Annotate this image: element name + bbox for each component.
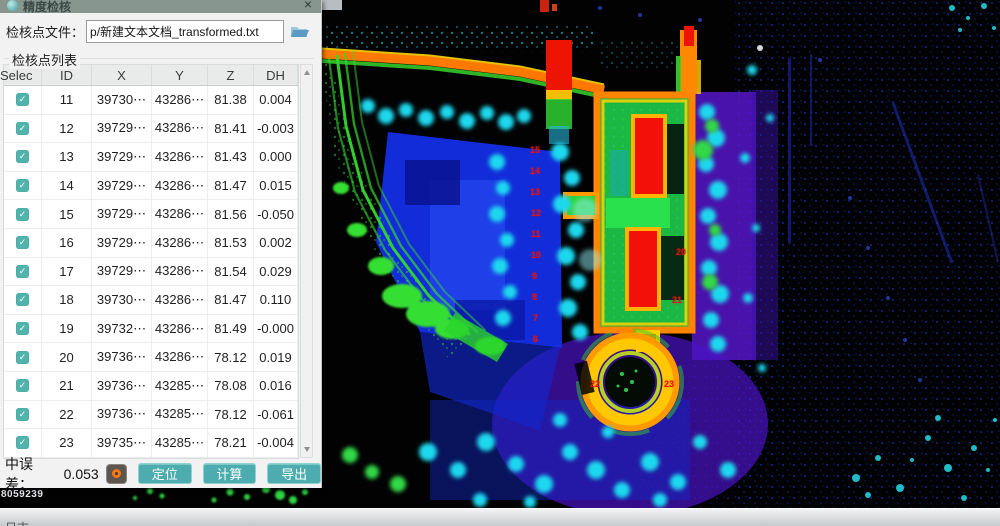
row-checkbox[interactable]: ✓ <box>16 293 29 306</box>
cell-dh: 0.016 <box>254 372 298 400</box>
cell-id: 18 <box>42 286 92 314</box>
cell-x: 39729⋯ <box>92 143 152 171</box>
row-checkbox[interactable]: ✓ <box>16 379 29 392</box>
header-y[interactable]: Y <box>152 65 208 85</box>
cell-z: 78.21 <box>208 429 254 457</box>
row-checkbox[interactable]: ✓ <box>16 208 29 221</box>
application-window: 8059239 151413121110987620212223 精度检核 × … <box>0 0 1000 526</box>
close-icon[interactable]: × <box>304 0 312 12</box>
cell-y: 43286⋯ <box>152 86 208 114</box>
cell-dh: -0.003 <box>254 115 298 143</box>
table-row[interactable]: ✓ 22 39736⋯ 43285⋯ 78.12 -0.061 <box>4 401 298 430</box>
cell-z: 81.53 <box>208 229 254 257</box>
cell-dh: 0.110 <box>254 286 298 314</box>
cell-z: 81.41 <box>208 115 254 143</box>
cell-y: 43286⋯ <box>152 115 208 143</box>
cell-x: 39736⋯ <box>92 401 152 429</box>
cell-dh: -0.050 <box>254 200 298 228</box>
cell-z: 78.12 <box>208 343 254 371</box>
cell-y: 43285⋯ <box>152 401 208 429</box>
cell-dh: -0.000 <box>254 315 298 343</box>
cell-y: 43286⋯ <box>152 229 208 257</box>
cell-id: 20 <box>42 343 92 371</box>
cell-dh: 0.000 <box>254 143 298 171</box>
browse-file-button[interactable] <box>290 24 310 39</box>
checkpoint-list-label: 检核点列表 <box>9 50 80 69</box>
cell-y: 43286⋯ <box>152 343 208 371</box>
header-x[interactable]: X <box>92 65 152 85</box>
cell-dh: -0.004 <box>254 429 298 457</box>
cell-id: 13 <box>42 143 92 171</box>
row-checkbox[interactable]: ✓ <box>16 351 29 364</box>
dialog-footer: 中误差： 0.053 定位 计算 导出 <box>0 459 321 488</box>
cell-id: 22 <box>42 401 92 429</box>
status-bar: 日志 <box>0 508 1000 526</box>
cell-y: 43286⋯ <box>152 258 208 286</box>
rmse-value: 0.053 <box>64 466 99 482</box>
checkpoint-table: Selec ID X Y Z DH ✓ 11 39730⋯ 43286⋯ 81.… <box>3 64 299 459</box>
table-row[interactable]: ✓ 18 39730⋯ 43286⋯ 81.47 0.110 <box>4 286 298 315</box>
cell-id: 15 <box>42 200 92 228</box>
cell-z: 81.49 <box>208 315 254 343</box>
row-checkbox[interactable]: ✓ <box>16 236 29 249</box>
log-tab-label[interactable]: 日志 <box>5 519 1000 526</box>
cell-x: 39736⋯ <box>92 372 152 400</box>
cell-y: 43285⋯ <box>152 429 208 457</box>
cell-x: 39729⋯ <box>92 200 152 228</box>
row-checkbox[interactable]: ✓ <box>16 265 29 278</box>
cell-id: 14 <box>42 172 92 200</box>
row-checkbox[interactable]: ✓ <box>16 150 29 163</box>
cell-dh: 0.019 <box>254 343 298 371</box>
row-checkbox[interactable]: ✓ <box>16 322 29 335</box>
cell-z: 81.56 <box>208 200 254 228</box>
cell-y: 43286⋯ <box>152 315 208 343</box>
row-checkbox[interactable]: ✓ <box>16 436 29 449</box>
cell-z: 81.54 <box>208 258 254 286</box>
cell-z: 78.08 <box>208 372 254 400</box>
rmse-label: 中误差： <box>5 454 59 494</box>
cell-y: 43286⋯ <box>152 286 208 314</box>
cell-z: 78.12 <box>208 401 254 429</box>
cell-x: 39729⋯ <box>92 172 152 200</box>
cell-dh: 0.029 <box>254 258 298 286</box>
locate-button[interactable]: 定位 <box>138 463 192 484</box>
open-folder-icon <box>290 24 310 39</box>
app-icon <box>7 0 18 11</box>
table-row[interactable]: ✓ 16 39729⋯ 43286⋯ 81.53 0.002 <box>4 229 298 258</box>
header-dh[interactable]: DH <box>254 65 298 85</box>
row-checkbox[interactable]: ✓ <box>16 408 29 421</box>
table-row[interactable]: ✓ 19 39732⋯ 43286⋯ 81.49 -0.000 <box>4 315 298 344</box>
scrollbar-down-icon[interactable] <box>304 447 310 452</box>
table-row[interactable]: ✓ 20 39736⋯ 43286⋯ 78.12 0.019 <box>4 343 298 372</box>
cell-x: 39732⋯ <box>92 315 152 343</box>
locate-indicator-button[interactable] <box>106 464 127 484</box>
cell-x: 39729⋯ <box>92 258 152 286</box>
precision-check-dialog: 精度检核 × 检核点文件： 检核点列表 Selec ID X Y Z DH <box>0 0 322 488</box>
scrollbar-up-icon[interactable] <box>304 70 310 75</box>
checkpoint-file-input[interactable] <box>86 20 284 43</box>
cell-y: 43286⋯ <box>152 143 208 171</box>
cell-id: 21 <box>42 372 92 400</box>
checkpoint-file-label: 检核点文件： <box>6 22 84 41</box>
cell-z: 81.38 <box>208 86 254 114</box>
row-checkbox[interactable]: ✓ <box>16 93 29 106</box>
cell-x: 39729⋯ <box>92 115 152 143</box>
checkpoint-table-body: ✓ 11 39730⋯ 43286⋯ 81.38 0.004 ✓ 12 3972… <box>4 86 298 458</box>
table-row[interactable]: ✓ 14 39729⋯ 43286⋯ 81.47 0.015 <box>4 172 298 201</box>
table-row[interactable]: ✓ 11 39730⋯ 43286⋯ 81.38 0.004 <box>4 86 298 115</box>
cell-x: 39730⋯ <box>92 86 152 114</box>
cell-x: 39736⋯ <box>92 343 152 371</box>
cell-id: 19 <box>42 315 92 343</box>
cell-y: 43285⋯ <box>152 372 208 400</box>
window-frame-notch <box>322 0 342 10</box>
cell-id: 17 <box>42 258 92 286</box>
table-row[interactable]: ✓ 13 39729⋯ 43286⋯ 81.43 0.000 <box>4 143 298 172</box>
row-checkbox[interactable]: ✓ <box>16 179 29 192</box>
cell-z: 81.47 <box>208 286 254 314</box>
cell-id: 12 <box>42 115 92 143</box>
row-checkbox[interactable]: ✓ <box>16 122 29 135</box>
calculate-button[interactable]: 计算 <box>203 463 257 484</box>
cell-x: 39730⋯ <box>92 286 152 314</box>
cell-dh: 0.004 <box>254 86 298 114</box>
cell-dh: 0.002 <box>254 229 298 257</box>
table-row[interactable]: ✓ 17 39729⋯ 43286⋯ 81.54 0.029 <box>4 258 298 287</box>
header-z[interactable]: Z <box>208 65 254 85</box>
table-scrollbar[interactable] <box>300 64 313 458</box>
cell-id: 16 <box>42 229 92 257</box>
table-row[interactable]: ✓ 21 39736⋯ 43285⋯ 78.08 0.016 <box>4 372 298 401</box>
export-button[interactable]: 导出 <box>267 463 321 484</box>
cell-y: 43286⋯ <box>152 172 208 200</box>
table-row[interactable]: ✓ 15 39729⋯ 43286⋯ 81.56 -0.050 <box>4 200 298 229</box>
dialog-titlebar[interactable]: 精度检核 × <box>0 0 321 13</box>
cell-z: 81.47 <box>208 172 254 200</box>
cell-id: 11 <box>42 86 92 114</box>
cell-dh: 0.015 <box>254 172 298 200</box>
checkpoint-file-row: 检核点文件： <box>6 20 310 43</box>
cell-x: 39735⋯ <box>92 429 152 457</box>
cell-x: 39729⋯ <box>92 229 152 257</box>
table-row[interactable]: ✓ 12 39729⋯ 43286⋯ 81.41 -0.003 <box>4 115 298 144</box>
record-dot-icon <box>112 469 121 478</box>
dialog-title: 精度检核 <box>23 0 71 13</box>
cell-y: 43286⋯ <box>152 200 208 228</box>
cell-z: 81.43 <box>208 143 254 171</box>
cell-dh: -0.061 <box>254 401 298 429</box>
